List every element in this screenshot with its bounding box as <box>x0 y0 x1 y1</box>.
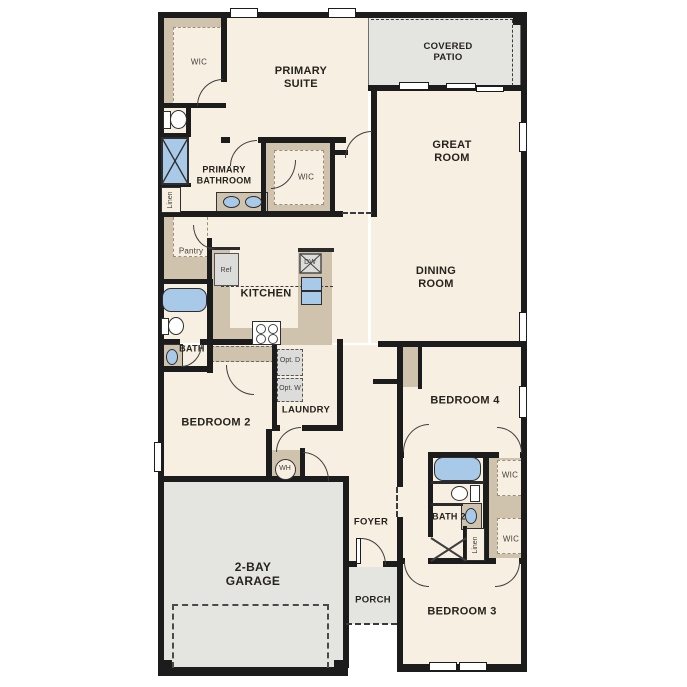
wall-laundry-right <box>337 339 343 431</box>
label-laundry: LAUNDRY <box>282 404 330 415</box>
label-wic-bed4: WIC <box>502 470 518 479</box>
wall-foyer-right-b <box>397 517 403 562</box>
garage-door-dash <box>172 604 329 668</box>
patio-edge-dash-right <box>512 20 513 86</box>
window-primary-suite-1 <box>230 8 258 18</box>
wall-bedroom2-right <box>266 429 272 480</box>
wall-bed3-top-c <box>519 558 527 564</box>
wall-porch-top-a <box>343 561 357 567</box>
bedroom4-closet-wall <box>418 347 422 389</box>
label-linen-bed3: Linen <box>472 536 480 553</box>
bedroom4-closet <box>402 347 418 387</box>
label-bath3: BATH 3 <box>179 344 213 355</box>
tub-bath2-icon <box>434 457 481 481</box>
patio-slider-door-1 <box>446 83 476 89</box>
patio-edge-dash-top <box>371 19 513 20</box>
kitchen-sink-icon <box>301 277 320 304</box>
label-bath2: BATH 2 <box>432 512 466 523</box>
patio-slider-door-2 <box>476 86 504 92</box>
kitchen-counter-topline-right <box>298 248 334 252</box>
label-bedroom4: BEDROOM 4 <box>430 395 499 408</box>
corner-block-patio <box>513 12 527 25</box>
label-dw: DW <box>304 259 316 267</box>
label-wh: WH <box>279 465 291 473</box>
wall-garage-bottom <box>158 667 348 676</box>
window-dining-right <box>519 312 527 342</box>
label-porch: PORCH <box>355 594 391 605</box>
opening-dash-greatroom <box>342 212 372 214</box>
porch-edge-dash <box>346 623 397 625</box>
great-dining-floor <box>371 91 521 343</box>
wall-laundry-bottom-b <box>302 425 343 431</box>
label-wic-bed3: WIC <box>503 534 519 543</box>
label-foyer: FOYER <box>354 516 388 527</box>
opening-dash-foyer <box>396 487 398 517</box>
label-opt-d: Opt. D <box>279 357 301 365</box>
label-dining-room: DINING ROOM <box>406 265 466 291</box>
label-ref: Ref <box>221 267 232 275</box>
window-bedroom3-bottom-1 <box>429 662 457 671</box>
corner-block-garage-left <box>158 660 172 676</box>
window-greatroom-top <box>399 82 429 90</box>
label-wic-primary-2: WIC <box>298 172 314 181</box>
sink-bath2-icon <box>465 508 477 524</box>
label-covered-patio: COVERED PATIO <box>412 41 484 63</box>
floor-plan: WIC PRIMARY SUITE COVERED PATIO GREAT RO… <box>0 0 687 687</box>
toilet-primary-icon <box>163 109 189 131</box>
sink-primary-1-icon <box>223 196 240 208</box>
wall-bath3-right <box>207 279 213 373</box>
label-kitchen: KITCHEN <box>241 288 292 301</box>
window-greatroom-right <box>519 122 527 152</box>
window-primary-suite-2 <box>328 8 356 18</box>
wall-foyer-right-a <box>397 455 403 487</box>
wall-hall-right <box>397 384 403 454</box>
label-wic-primary: WIC <box>191 57 207 66</box>
wall-bedroom4-left <box>397 347 403 383</box>
wall-wic1-suite <box>221 12 227 82</box>
label-opt-w: Opt. W <box>279 385 301 393</box>
label-pantry: Pantry <box>179 246 203 255</box>
wall-bath2-left <box>428 452 433 537</box>
wall-bath3-top <box>158 279 212 284</box>
toilet-bath2-icon <box>450 484 480 503</box>
label-bedroom2: BEDROOM 2 <box>181 417 250 430</box>
corner-block-garage-right <box>334 660 348 676</box>
bath2-toilet-line <box>431 503 463 506</box>
stove-icon <box>252 321 281 345</box>
sink-primary-2-icon <box>245 196 262 208</box>
label-bedroom3: BEDROOM 3 <box>427 606 496 619</box>
label-linen-primary: Linen <box>167 191 175 208</box>
window-bedroom3-bottom-2 <box>459 662 487 671</box>
wall-laundry-bottom-a <box>272 425 280 431</box>
label-primary-bathroom: PRIMARY BATHROOM <box>183 164 265 185</box>
hall-cabinet-strip <box>211 346 274 362</box>
wall-garage-right <box>343 478 349 668</box>
wall-bed3-left <box>397 558 403 666</box>
wall-bath3-mid <box>158 339 180 344</box>
tub-bath3-icon <box>162 288 207 312</box>
label-great-room: GREAT ROOM <box>422 139 482 165</box>
wall-suite-bottom-a <box>221 137 230 143</box>
window-bedroom2-left <box>154 442 162 472</box>
sink-bath3-icon <box>166 349 178 365</box>
toilet-bath3-icon <box>161 316 187 337</box>
wic-divider-band <box>484 500 521 510</box>
wall-wic2-right <box>330 137 335 213</box>
label-garage: 2-BAY GARAGE <box>208 560 298 588</box>
wall-bath-kitchen <box>158 211 343 217</box>
label-primary-suite: PRIMARY SUITE <box>265 65 337 91</box>
window-bedroom4-right <box>519 386 527 418</box>
